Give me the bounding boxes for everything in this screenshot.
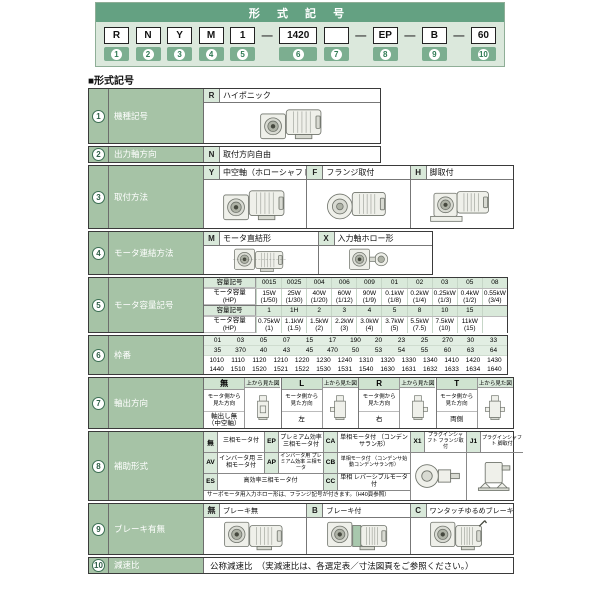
row-number-badge: 7 bbox=[92, 397, 105, 410]
code-cell: C bbox=[411, 504, 427, 517]
row-label: 機種記号 bbox=[109, 89, 204, 143]
badge-number: 1 bbox=[111, 49, 122, 60]
code-unit: 15 bbox=[230, 27, 255, 61]
top-view-diagram bbox=[245, 388, 280, 428]
capacity-code: 3 bbox=[331, 306, 356, 316]
frame-number: 25 bbox=[413, 337, 436, 344]
frame-number-line: 1010111011201210122012301240131013201330… bbox=[204, 356, 507, 365]
row-number-cell: 4 bbox=[89, 232, 109, 274]
table-row-mounting: 3 取付方法 Y中空軸（ホローシャフト） Fフランジ取付 H脚取付 bbox=[88, 165, 514, 229]
frame-number: 54 bbox=[390, 347, 413, 354]
capacity-value: 0.55kW (3/4) bbox=[482, 289, 507, 305]
code-separator-dash: — bbox=[453, 27, 464, 44]
row-label: 取付方法 bbox=[109, 166, 204, 228]
capacity-values: 0.75kW (1)1.1kW (1.5)1.5kW (2)2.2kW (3)3… bbox=[256, 317, 507, 333]
code-cell: R bbox=[204, 89, 220, 102]
frame-number: 1110 bbox=[227, 357, 248, 364]
frame-number-line: 1440151015201521152215301531154016301631… bbox=[204, 365, 507, 374]
badge-number: 5 bbox=[237, 49, 248, 60]
code-cell: F bbox=[307, 166, 323, 179]
code-cell: CB bbox=[324, 453, 338, 474]
top-view-diagram bbox=[323, 388, 358, 428]
code-box: B bbox=[422, 27, 447, 44]
code-cell: X1 bbox=[411, 432, 425, 453]
code-unit: 14206 bbox=[279, 27, 317, 61]
badge-number: 2 bbox=[143, 49, 154, 60]
code-cell: EP bbox=[265, 432, 279, 453]
mounting-option: Y中空軸（ホローシャフト） bbox=[204, 166, 307, 228]
code-desc: プラグインシャフト フランジ取付 bbox=[425, 432, 467, 453]
row-number-cell: 7 bbox=[89, 378, 109, 428]
capacity-value: 5.5kW (7.5) bbox=[407, 317, 432, 333]
frame-number: 270 bbox=[436, 337, 459, 344]
frame-number: 35 bbox=[206, 347, 229, 354]
capacity-code: 03 bbox=[432, 278, 457, 288]
capacity-codes: 11H234581015 bbox=[256, 306, 507, 316]
badge-number: 4 bbox=[206, 49, 217, 60]
row-number-cell: 3 bbox=[89, 166, 109, 228]
code-unit: Y3 bbox=[167, 27, 192, 61]
row-number-badge: 4 bbox=[92, 247, 105, 260]
code-separator-dash: — bbox=[262, 27, 273, 44]
frame-number: 1330 bbox=[398, 357, 419, 364]
gearmotor-illustration bbox=[411, 180, 513, 228]
gearmotor-illustration bbox=[411, 518, 513, 554]
badge-number: 7 bbox=[331, 49, 342, 60]
row-number-badge: 10 bbox=[92, 559, 105, 572]
code-cell: 無 bbox=[204, 504, 220, 517]
frame-number: 43 bbox=[275, 347, 298, 354]
row-label: 枠番 bbox=[109, 336, 204, 374]
code-cell: T bbox=[437, 378, 477, 390]
capacity-value: 3.7kW (5) bbox=[381, 317, 406, 333]
row-number-badge: 2 bbox=[92, 148, 105, 161]
code-box bbox=[324, 27, 349, 44]
capacity-code: 0025 bbox=[281, 278, 306, 288]
code-desc: インバータ用 三相モータ付 bbox=[218, 453, 265, 474]
row-number-badge: 5 bbox=[92, 299, 105, 312]
code-unit: 6010 bbox=[471, 27, 496, 61]
row-number-badge: 1 bbox=[92, 110, 105, 123]
mounting-option: H脚取付 bbox=[411, 166, 513, 228]
plugin-shaft-flange-illustration bbox=[411, 453, 467, 500]
capacity-value: 0.2kW (1/4) bbox=[407, 289, 432, 305]
frame-number: 470 bbox=[321, 347, 344, 354]
capacity-code bbox=[482, 306, 507, 316]
frame-number: 1521 bbox=[270, 366, 291, 373]
row-label: ブレーキ有無 bbox=[109, 504, 204, 554]
code-unit: EP8 bbox=[373, 27, 398, 61]
frame-number: 1510 bbox=[227, 366, 248, 373]
capacity-value: 40W (1/20) bbox=[306, 289, 331, 305]
code-desc: ブレーキ付 bbox=[323, 504, 409, 517]
brake-option: Cワンタッチゆるめブレーキ付 bbox=[411, 504, 513, 554]
view-direction-label: モータ側から 見た方向 bbox=[204, 390, 244, 412]
row-label: モータ連結方法 bbox=[109, 232, 204, 274]
code-cell: X bbox=[319, 232, 335, 245]
capacity-code: 5 bbox=[381, 306, 406, 316]
capacity-code: 4 bbox=[356, 306, 381, 316]
code-desc: プラグインシャフト 脚取付 bbox=[481, 432, 523, 453]
code-cell: CC bbox=[324, 474, 338, 491]
frame-number: 01 bbox=[206, 337, 229, 344]
code-number-badge: 3 bbox=[167, 47, 192, 61]
code-cell: AP bbox=[265, 453, 279, 474]
code-box: 1420 bbox=[279, 27, 317, 44]
code-cell: 無 bbox=[204, 432, 218, 453]
table-row-motor-capacity: 5 モータ容量記号 容量記号 0015002500400600901020305… bbox=[88, 277, 508, 333]
frame-number: 1220 bbox=[291, 357, 312, 364]
code-cell: CA bbox=[324, 432, 338, 453]
frame-number: 190 bbox=[344, 337, 367, 344]
gearmotor-illustration bbox=[307, 180, 409, 228]
row-label: 補助形式 bbox=[109, 432, 204, 500]
code-separator-dash: — bbox=[355, 27, 366, 44]
row-number-badge: 8 bbox=[92, 460, 105, 473]
code-cell: AV bbox=[204, 453, 218, 474]
gearmotor-illustration bbox=[204, 180, 306, 228]
badge-number: 8 bbox=[380, 49, 391, 60]
frame-number: 1540 bbox=[356, 366, 377, 373]
gearmotor-illustration bbox=[204, 518, 306, 554]
code-number-badge: 7 bbox=[324, 47, 349, 61]
code-box: Y bbox=[167, 27, 192, 44]
code-desc: ブレーキ無 bbox=[220, 504, 306, 517]
frame-number: 17 bbox=[321, 337, 344, 344]
frame-number: 1631 bbox=[398, 366, 419, 373]
shaft-direction-value: 左 bbox=[282, 412, 322, 428]
capacity-value: 25W (1/30) bbox=[281, 289, 306, 305]
badge-number: 9 bbox=[429, 49, 440, 60]
mounting-option: Fフランジ取付 bbox=[307, 166, 410, 228]
frame-number: 40 bbox=[252, 347, 275, 354]
code-unit: B9 bbox=[422, 27, 447, 61]
shaft-direction-value: 右 bbox=[359, 412, 399, 428]
banner-body: R1N2Y3M415—142067—EP8—B9—6010 bbox=[96, 22, 504, 66]
frame-number-line: 3537040434547050535455606364 bbox=[204, 346, 507, 356]
code-box: R bbox=[104, 27, 129, 44]
row-label: 減速比 bbox=[109, 558, 204, 573]
capacity-value: 11kW (15) bbox=[457, 317, 482, 333]
frame-number: 1230 bbox=[313, 357, 334, 364]
capacity-code: 1H bbox=[281, 306, 306, 316]
frame-number: 30 bbox=[459, 337, 482, 344]
capacity-table-small: 容量記号 001500250040060090102030508 モータ容量 (… bbox=[204, 278, 507, 306]
row-label: モータ容量記号 bbox=[109, 278, 204, 332]
frame-number: 1522 bbox=[291, 366, 312, 373]
table-row-shaft-direction: 7 軸出方向 無 モータ側から 見た方向 軸出し無 （中空軸） 上から見た図 bbox=[88, 377, 514, 429]
row-number-badge: 9 bbox=[92, 523, 105, 536]
top-view-label: 上から見た図 bbox=[323, 378, 358, 388]
code-number-badge: 4 bbox=[199, 47, 224, 61]
banner-title: 形 式 記 号 bbox=[96, 3, 504, 22]
frame-number: 1530 bbox=[313, 366, 334, 373]
badge-number: 10 bbox=[478, 49, 489, 60]
row-number-cell: 9 bbox=[89, 504, 109, 554]
code-box: M bbox=[199, 27, 224, 44]
code-desc: 三相モータ付 bbox=[218, 432, 265, 453]
frame-number: 07 bbox=[275, 337, 298, 344]
row-number-cell: 6 bbox=[89, 336, 109, 374]
brake-option: Bブレーキ付 bbox=[307, 504, 410, 554]
code-cell: M bbox=[204, 232, 220, 245]
format-code-table: 1 機種記号 R ハイポニック 2 出力軸方向 N 取付方向自由 bbox=[88, 88, 514, 576]
capacity-value: 3.0kW (4) bbox=[356, 317, 381, 333]
table-row-frame-number: 6 枠番 0103050715171902023252703033 353704… bbox=[88, 335, 508, 375]
capacity-code: 009 bbox=[356, 278, 381, 288]
catalog-page: 形 式 記 号 R1N2Y3M415—142067—EP8—B9—6010 ■形… bbox=[0, 0, 600, 600]
row-label: 出力軸方向 bbox=[109, 147, 204, 162]
code-cell: R bbox=[359, 378, 399, 390]
row-number-cell: 10 bbox=[89, 558, 109, 573]
capacity-value: 0.75kW (1) bbox=[256, 317, 281, 333]
code-number-badge: 1 bbox=[104, 47, 129, 61]
code-cell: L bbox=[282, 378, 322, 390]
auxiliary-grid: 無 三相モータ付 EP プレミアム効率 三相モータ付 CA 単相モータ付 （コン… bbox=[204, 432, 523, 500]
capacity-value: 0.1kW (1/8) bbox=[381, 289, 406, 305]
capacity-code: 02 bbox=[407, 278, 432, 288]
frame-number: 1632 bbox=[420, 366, 441, 373]
frame-number: 20 bbox=[367, 337, 390, 344]
shaft-direction-option: 無 モータ側から 見た方向 軸出し無 （中空軸） 上から見た図 bbox=[204, 378, 282, 428]
code-desc: 取付方向自由 bbox=[220, 147, 380, 162]
table-row-motor-connection: 4 モータ連結方法 Mモータ直結形 X入力軸ホロー形 bbox=[88, 231, 433, 275]
frame-number: 1320 bbox=[377, 357, 398, 364]
code-number-badge: 8 bbox=[373, 47, 398, 61]
code-number-badge: 9 bbox=[422, 47, 447, 61]
top-view-label: 上から見た図 bbox=[245, 378, 280, 388]
table-row-auxiliary-type: 8 補助形式 無 三相モータ付 EP プレミアム効率 三相モータ付 CA 単相モ… bbox=[88, 431, 514, 501]
frame-number: 23 bbox=[390, 337, 413, 344]
frame-number: 1420 bbox=[462, 357, 483, 364]
capacity-code-header: 容量記号 bbox=[204, 306, 256, 316]
row-label: 軸出方向 bbox=[109, 378, 204, 428]
frame-number: 1010 bbox=[206, 357, 227, 364]
shaft-direction-value: 両側 bbox=[437, 412, 477, 428]
code-unit: N2 bbox=[136, 27, 161, 61]
top-view-label: 上から見た図 bbox=[478, 378, 513, 388]
capacity-code: 08 bbox=[482, 278, 507, 288]
table-row-brake: 9 ブレーキ有無 無ブレーキ無 Bブレーキ付 Cワンタッチゆるめブレーキ付 bbox=[88, 503, 514, 555]
code-desc: フランジ取付 bbox=[323, 166, 409, 179]
gearmotor-illustration bbox=[319, 246, 433, 274]
frame-number: 1634 bbox=[462, 366, 483, 373]
code-cell: N bbox=[204, 147, 220, 162]
shaft-direction-option: T モータ側から 見た方向 両側 上から見た図 bbox=[437, 378, 514, 428]
top-view-diagram bbox=[400, 388, 435, 428]
connection-option: Mモータ直結形 bbox=[204, 232, 319, 274]
shaft-direction-option: R モータ側から 見た方向 右 上から見た図 bbox=[359, 378, 437, 428]
frame-number: 63 bbox=[459, 347, 482, 354]
capacity-code: 10 bbox=[432, 306, 457, 316]
frame-number: 1520 bbox=[249, 366, 270, 373]
capacity-value-header: モータ容量 (HP) bbox=[204, 289, 256, 305]
frame-number: 03 bbox=[229, 337, 252, 344]
capacity-value: 0.25kW (1/3) bbox=[432, 289, 457, 305]
code-box: 60 bbox=[471, 27, 496, 44]
code-number-badge: 6 bbox=[279, 47, 317, 61]
capacity-code: 1 bbox=[256, 306, 281, 316]
code-desc: 単相 レバーシブルモータ付 bbox=[338, 474, 411, 491]
frame-number: 1440 bbox=[206, 366, 227, 373]
code-cell: B bbox=[307, 504, 323, 517]
row-number-badge: 3 bbox=[92, 191, 105, 204]
frame-number: 33 bbox=[482, 337, 505, 344]
capacity-value: 60W (1/12) bbox=[331, 289, 356, 305]
frame-number: 50 bbox=[344, 347, 367, 354]
frame-number: 1240 bbox=[334, 357, 355, 364]
code-desc: プレミアム効率 三相モータ付 bbox=[279, 432, 324, 453]
code-desc: 単相モータ付 （コンデンサラン形） bbox=[338, 432, 411, 453]
capacity-value: 0.4kW (1/2) bbox=[457, 289, 482, 305]
format-code-banner: 形 式 記 号 R1N2Y3M415—142067—EP8—B9—6010 bbox=[95, 2, 505, 67]
code-unit: 7 bbox=[324, 27, 349, 61]
capacity-code-header: 容量記号 bbox=[204, 278, 256, 288]
frame-number: 1531 bbox=[334, 366, 355, 373]
frame-number: 15 bbox=[298, 337, 321, 344]
frame-number: 60 bbox=[436, 347, 459, 354]
frame-number: 1210 bbox=[270, 357, 291, 364]
shaft-direction-option: L モータ側から 見た方向 左 上から見た図 bbox=[282, 378, 360, 428]
code-box: EP bbox=[373, 27, 398, 44]
row-number-badge: 6 bbox=[92, 349, 105, 362]
capacity-code: 2 bbox=[306, 306, 331, 316]
code-desc: 入力軸ホロー形 bbox=[335, 232, 433, 245]
top-view-label: 上から見た図 bbox=[400, 378, 435, 388]
row-number-cell: 2 bbox=[89, 147, 109, 162]
frame-number: 05 bbox=[252, 337, 275, 344]
row-number-cell: 8 bbox=[89, 432, 109, 500]
section-heading: ■形式記号 bbox=[88, 72, 134, 87]
code-box: N bbox=[136, 27, 161, 44]
capacity-code: 0015 bbox=[256, 278, 281, 288]
code-separator-dash: — bbox=[404, 27, 415, 44]
capacity-code: 01 bbox=[381, 278, 406, 288]
code-cell: Y bbox=[204, 166, 220, 179]
gearmotor-illustration bbox=[204, 103, 380, 143]
capacity-value: 2.2kW (3) bbox=[331, 317, 356, 333]
capacity-code: 006 bbox=[331, 278, 356, 288]
frame-number-line: 0103050715171902023252703033 bbox=[204, 336, 507, 346]
code-cell: H bbox=[411, 166, 427, 179]
capacity-value bbox=[482, 317, 507, 333]
reduction-ratio-desc: 公称減速比 （実減速比は、各選定表／寸法図頁をご参照ください。） bbox=[204, 558, 513, 573]
code-cell: J1 bbox=[467, 432, 481, 453]
code-number-badge: 2 bbox=[136, 47, 161, 61]
frame-number: 1633 bbox=[441, 366, 462, 373]
capacity-code: 15 bbox=[457, 306, 482, 316]
badge-number: 3 bbox=[174, 49, 185, 60]
code-desc: 高効率三相モータ付 bbox=[218, 474, 324, 491]
code-unit: M4 bbox=[199, 27, 224, 61]
frame-number: 370 bbox=[229, 347, 252, 354]
capacity-table-large: 容量記号 11H234581015 モータ容量 (HP) 0.75kW (1)1… bbox=[204, 306, 507, 333]
code-box-row: R1N2Y3M415—142067—EP8—B9—6010 bbox=[104, 27, 496, 61]
code-number-badge: 10 bbox=[471, 47, 496, 61]
frame-number: 1120 bbox=[249, 357, 270, 364]
view-direction-label: モータ側から 見た方向 bbox=[359, 390, 399, 412]
code-cell: 無 bbox=[204, 378, 244, 390]
code-desc: 脚取付 bbox=[427, 166, 513, 179]
frame-number: 55 bbox=[413, 347, 436, 354]
code-box: 1 bbox=[230, 27, 255, 44]
table-row-output-direction: 2 出力軸方向 N 取付方向自由 bbox=[88, 146, 381, 163]
frame-number: 64 bbox=[482, 347, 505, 354]
code-unit: R1 bbox=[104, 27, 129, 61]
table-row-reduction-ratio: 10 減速比 公称減速比 （実減速比は、各選定表／寸法図頁をご参照ください。） bbox=[88, 557, 514, 574]
code-desc: インバータ用 プレミアム効率 三相モータ bbox=[279, 453, 324, 474]
code-desc: ワンタッチゆるめブレーキ付 bbox=[427, 504, 513, 517]
gearmotor-illustration bbox=[204, 246, 318, 274]
table-row-series: 1 機種記号 R ハイポニック bbox=[88, 88, 381, 144]
view-direction-label: モータ側から 見た方向 bbox=[282, 390, 322, 412]
row-number-cell: 1 bbox=[89, 89, 109, 143]
top-view-diagram bbox=[478, 388, 513, 428]
frame-number: 1630 bbox=[377, 366, 398, 373]
row-number-cell: 5 bbox=[89, 278, 109, 332]
gearmotor-illustration bbox=[307, 518, 409, 554]
frame-number: 1310 bbox=[356, 357, 377, 364]
frame-number: 53 bbox=[367, 347, 390, 354]
shaft-direction-value: 軸出し無 （中空軸） bbox=[204, 412, 244, 428]
capacity-value: 7.5kW (10) bbox=[432, 317, 457, 333]
frame-number: 1430 bbox=[484, 357, 505, 364]
capacity-value-header: モータ容量 (HP) bbox=[204, 317, 256, 333]
code-desc: ハイポニック bbox=[220, 89, 380, 102]
code-cell: ES bbox=[204, 474, 218, 491]
code-desc: 中空軸（ホローシャフト） bbox=[220, 166, 306, 179]
capacity-codes: 001500250040060090102030508 bbox=[256, 278, 507, 288]
view-direction-label: モータ側から 見た方向 bbox=[437, 390, 477, 412]
frame-number: 45 bbox=[298, 347, 321, 354]
plugin-shaft-foot-illustration bbox=[467, 453, 523, 500]
frame-number: 1410 bbox=[441, 357, 462, 364]
capacity-value: 1.5kW (2) bbox=[306, 317, 331, 333]
brake-option: 無ブレーキ無 bbox=[204, 504, 307, 554]
capacity-code: 004 bbox=[306, 278, 331, 288]
capacity-values: 15W (1/50)25W (1/30)40W (1/20)60W (1/12)… bbox=[256, 289, 507, 305]
badge-number: 6 bbox=[293, 49, 304, 60]
capacity-code: 05 bbox=[457, 278, 482, 288]
capacity-value: 90W (1/9) bbox=[356, 289, 381, 305]
code-number-badge: 5 bbox=[230, 47, 255, 61]
frame-number: 1640 bbox=[484, 366, 505, 373]
frame-number: 1340 bbox=[420, 357, 441, 364]
capacity-value: 15W (1/50) bbox=[256, 289, 281, 305]
connection-option: X入力軸ホロー形 bbox=[319, 232, 433, 274]
code-desc: 単相モータ付 （コンデンサ始動コンデンサラン形） bbox=[338, 453, 411, 474]
capacity-code: 8 bbox=[407, 306, 432, 316]
capacity-value: 1.1kW (1.5) bbox=[281, 317, 306, 333]
auxiliary-note: サーボモータ用入力ホロー形は、フランジ記号が付きます。（H40頁参照） bbox=[204, 491, 411, 500]
code-desc: モータ直結形 bbox=[220, 232, 318, 245]
